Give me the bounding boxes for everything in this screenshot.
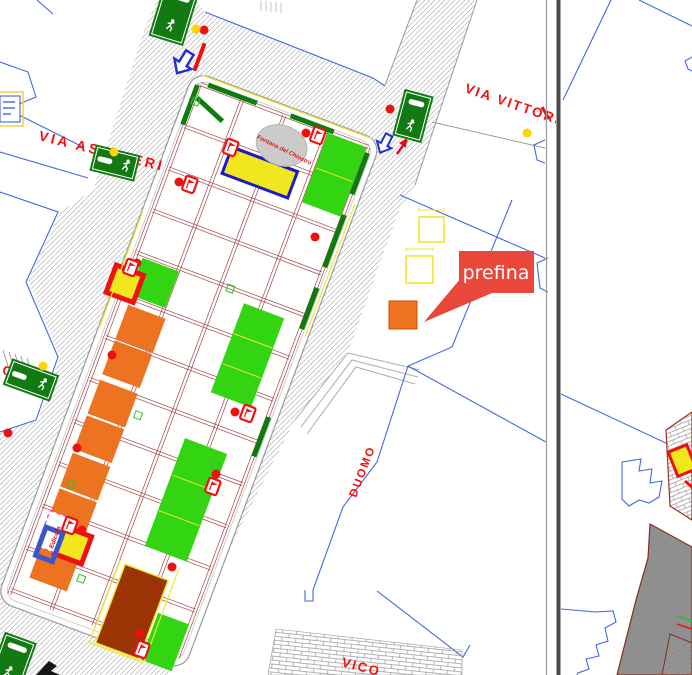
street-label-via-vittorio: VIA VITTORIO VE <box>463 81 601 141</box>
dimension-line <box>406 247 433 251</box>
target-orange-square[interactable] <box>389 301 417 329</box>
red-dot-marker <box>231 408 240 417</box>
right-panel <box>561 0 692 675</box>
tooltip-prefina[interactable]: prefina <box>424 251 534 322</box>
red-dot-marker <box>311 233 320 242</box>
sign-plate <box>3 358 60 401</box>
red-dot-marker <box>302 129 311 138</box>
yellow-outline-square[interactable] <box>419 217 444 242</box>
red-dot-marker <box>78 526 87 535</box>
yellow-outline-square[interactable] <box>406 256 433 283</box>
red-dot-marker <box>212 470 221 479</box>
plan-main-area: Fontana del Chiostro Edicola VIA ASCHIER… <box>0 0 601 675</box>
red-dot-marker <box>200 26 209 35</box>
yellow-dot-marker <box>110 148 119 157</box>
red-dot-marker <box>136 630 145 639</box>
red-dot-marker <box>108 351 117 360</box>
yellow-dot-marker <box>523 129 532 138</box>
red-dot-marker <box>4 429 13 438</box>
red-dot-marker <box>73 444 82 453</box>
site-plan-canvas: Fontana del Chiostro Edicola VIA ASCHIER… <box>0 0 692 675</box>
yellow-dot-marker <box>39 362 48 371</box>
duomo-label: DUOMO <box>348 444 379 499</box>
red-dot-marker <box>168 563 177 572</box>
yellow-dot-marker <box>192 25 201 34</box>
panel-divider-thick[interactable] <box>557 0 561 675</box>
top-steps-hatch <box>261 1 281 13</box>
red-dot-marker <box>386 105 395 114</box>
pedestrian-sign[interactable] <box>3 358 60 401</box>
tooltip-label: prefina <box>463 262 530 284</box>
wall-placard <box>0 92 23 126</box>
